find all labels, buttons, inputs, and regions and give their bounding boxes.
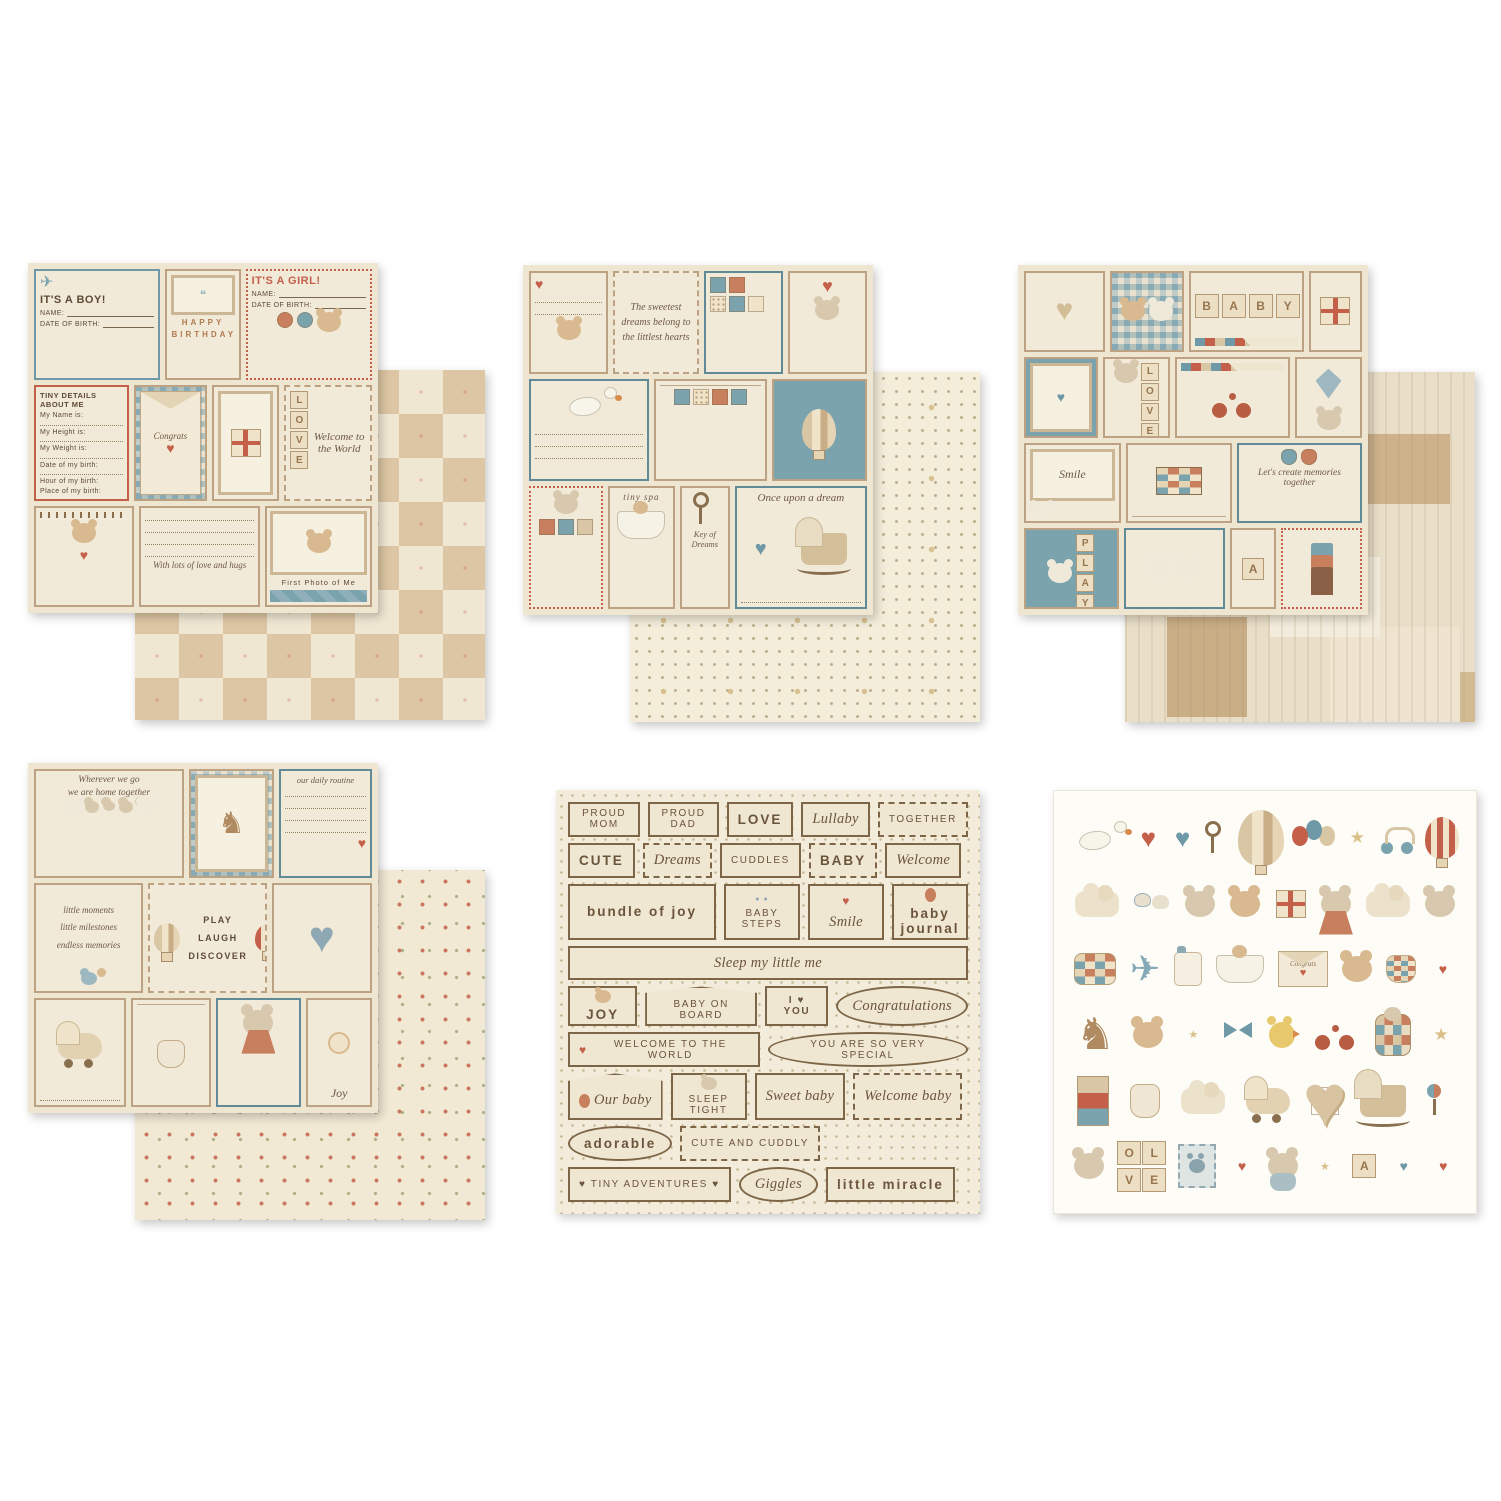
details-line: Place of my birth: (40, 488, 101, 495)
teddy-with-nightcap-icon (1133, 1022, 1163, 1048)
mouse-heart-card: ♥ (788, 271, 867, 374)
dotted-line (40, 422, 123, 426)
heart-icon: ♥ (40, 548, 128, 562)
label-text: WELCOME TO THE WORLD (592, 1039, 749, 1061)
mouse-icon (103, 801, 115, 811)
star-icon (1312, 1153, 1338, 1179)
bunting-banner (1195, 338, 1298, 346)
tricycle-card (1175, 357, 1290, 438)
motif-row (1068, 1068, 1462, 1134)
letter-block: L (290, 391, 308, 409)
motif-rows: Congrats♥OLVEA (1068, 805, 1462, 1199)
bathtub-teddy-icon (617, 511, 665, 539)
first-photo-caption: First Photo of Me (270, 578, 367, 587)
daily-routine-card: our daily routine ♥ (279, 769, 372, 878)
red-heart-icon (1430, 1153, 1456, 1179)
teddy-with-balloons-icon (1230, 891, 1260, 917)
label-joy: JOY (568, 986, 637, 1026)
airplane-with-teddy-icon (1130, 951, 1160, 987)
teddy-icon (1121, 301, 1145, 321)
a-block-card: A (1230, 528, 1276, 609)
reading-mouse-icon (554, 494, 578, 514)
label-row: PROUD MOMPROUD DADLOVELullabyTOGETHER (568, 802, 968, 837)
letter-block: L (1141, 363, 1159, 381)
letter-block: O (290, 411, 308, 429)
swing-card (1126, 443, 1232, 524)
key-of-dreams-text: Key of Dreams (686, 529, 724, 549)
clothes-patch (710, 296, 726, 312)
once-upon-text: Once upon a dream (741, 492, 861, 504)
label-row: JOYBABY ON BOARDI ♥ YOUCongratulations (568, 986, 968, 1026)
baby-clothes-card (704, 271, 783, 374)
moments-line: little moments (57, 902, 121, 919)
memories-card: Let's create memories together (1237, 443, 1362, 524)
label-row: Our babySLEEP TIGHTSweet babyWelcome bab… (568, 1073, 968, 1120)
heart-frame-icon: ♥ (794, 277, 861, 295)
label-text: Welcome (896, 852, 950, 869)
mouse-icon (63, 801, 81, 816)
key-of-dreams-card: Key of Dreams (680, 486, 730, 609)
blue-balloon-icon (154, 923, 180, 953)
label-row: CUTEDreamsCUDDLESBABYWelcome (568, 843, 968, 878)
key-icon (1204, 821, 1230, 855)
girl-name-label: NAME: (252, 291, 276, 298)
letter-block-a: A (1352, 1154, 1376, 1178)
label-lullaby: Lullaby (801, 802, 869, 837)
label-row: ♥ TINY ADVENTURES ♥Giggleslittle miracle (568, 1167, 968, 1202)
label-text: CUTE (579, 853, 624, 868)
girl-dob-label: DATE OF BIRTH: (252, 302, 312, 309)
label-row: Sleep my little me (568, 946, 968, 981)
cloud-icon (1366, 891, 1410, 917)
details-line: My Weight is: (40, 445, 87, 452)
tricycle-icon (1313, 1020, 1357, 1050)
cloud-icon (1181, 1088, 1225, 1114)
striped-hot-air-balloon-icon (1425, 817, 1459, 859)
smile-text: Smile (1059, 467, 1086, 482)
stork-icon (561, 385, 617, 423)
joy-card: Joy (306, 998, 372, 1107)
letter-block: B (1195, 294, 1219, 318)
name-write-line (67, 309, 154, 317)
patchwork-heart-icon: ♥ (1055, 296, 1073, 326)
dotted-line (535, 450, 643, 459)
patch-heart-card: ♥ (1024, 271, 1105, 352)
happy-birthday-card: ❝ HAPPY BIRTHDAY (165, 269, 240, 380)
heart-icon: ♥ (285, 836, 366, 850)
patch-teddy-icon (1048, 563, 1072, 583)
label-text: BABY STEPS (735, 908, 789, 930)
label-text: Sweet baby (766, 1088, 835, 1105)
label-baby-journal: baby journal (892, 884, 968, 940)
motif-row: OLVEA (1068, 1133, 1462, 1199)
letter-block: A (1076, 574, 1094, 592)
dotted-line (285, 800, 366, 809)
tiny-spa-card: tiny spa (608, 486, 675, 609)
clothesline (660, 385, 760, 386)
booties-icon (755, 893, 768, 904)
plaid-heart-icon: ♥ (1057, 390, 1065, 404)
cradle-icon (1360, 1085, 1406, 1117)
toys-card (1110, 271, 1184, 352)
label-i-you: I ♥ YOU (765, 986, 828, 1026)
label-text: CUDDLES (731, 855, 790, 866)
teddy-bear-icon (1342, 956, 1372, 982)
toy-scooter-icon (1379, 822, 1417, 854)
label-together: TOGETHER (878, 802, 968, 837)
mouse-love-blocks-card: L O V E (1103, 357, 1170, 438)
label-dreams: Dreams (643, 843, 712, 878)
gift-card (1309, 271, 1362, 352)
mouse-in-bathrobe-icon (1268, 1153, 1298, 1179)
high-chair-icon (1311, 543, 1333, 595)
stork-card (529, 379, 649, 482)
high-chair-card (1281, 528, 1362, 609)
label-text: YOU ARE SO VERY SPECIAL (784, 1039, 952, 1061)
label-text: Lullaby (812, 811, 858, 828)
star-icon (1428, 1022, 1454, 1048)
heart-icon: ♥ (1279, 968, 1327, 979)
paper-group-3: ♥ B A B Y (1018, 265, 1478, 725)
label-love: LOVE (727, 802, 794, 837)
letter-block: L (1076, 554, 1094, 572)
its-a-boy-card: ✈ IT'S A BOY! NAME: DATE OF BIRTH: (34, 269, 160, 380)
label-text: baby journal (901, 906, 960, 936)
label-text: Smile (829, 914, 863, 931)
love-welcome-card: L O V E Welcome to the World (284, 385, 372, 501)
tiny-details-card: TINY DETAILS ABOUT ME My Name is: My Hei… (34, 385, 129, 501)
congrats-envelope-icon: Congrats♥ (1278, 951, 1328, 987)
mouse-icon (1148, 559, 1172, 579)
label-text: little miracle (837, 1177, 944, 1192)
mouse-icon (1114, 363, 1138, 383)
balloon-bunch-icon (1292, 820, 1336, 856)
balloons-and-bear (252, 312, 366, 332)
flower-icon (328, 1032, 350, 1054)
mouse-icon (1176, 559, 1200, 579)
dotted-line (285, 824, 366, 833)
patchwork-onesie-icon (157, 1040, 185, 1068)
letter-block: P (1076, 534, 1094, 552)
book-icon (539, 519, 555, 535)
letter-blocks-love: OLVE (1117, 1141, 1164, 1192)
label-welcome-baby: Welcome baby (853, 1073, 962, 1120)
girl-card-title: IT'S A GIRL! (252, 275, 366, 287)
name-write-line (279, 290, 366, 298)
footprint-icon: ❝ (200, 289, 206, 301)
teddy-stamp-icon (1178, 1144, 1216, 1188)
photo-frame (270, 511, 367, 575)
dotted-line (535, 438, 643, 447)
dotted-line (535, 306, 602, 315)
mother-mouse-with-baby-icon (243, 1010, 273, 1036)
teddy-icon (317, 312, 341, 332)
teddy-icon (595, 990, 611, 1003)
motif-row (1068, 1002, 1462, 1068)
swing-rope (1132, 516, 1226, 517)
rocking-horse-card: ♞ (189, 769, 274, 878)
sweetest-dreams-note: The sweetest dreams belong to the little… (613, 271, 699, 374)
pram-card (34, 998, 126, 1107)
love-blocks: L O V E (1141, 363, 1159, 438)
label-text: BABY ON BOARD (656, 999, 746, 1021)
letter-block: O (1117, 1141, 1141, 1165)
plaid-heart-icon: ♥ (755, 539, 767, 559)
mice-frame-card (1124, 528, 1225, 609)
bird-icon (81, 972, 97, 985)
label-text: LOVE (738, 812, 783, 827)
label-proud-mom: PROUD MOM (568, 802, 640, 837)
play-blocks: P L A Y (1076, 534, 1094, 609)
label-bundle-of-joy: bundle of joy (568, 884, 716, 940)
welcome-script: Welcome to the World (312, 431, 366, 455)
label-text: SLEEP TIGHT (682, 1094, 736, 1116)
book-icon (558, 519, 574, 535)
label-text: ♥ TINY ADVENTURES ♥ (579, 1179, 720, 1190)
label-text: JOY (586, 1007, 619, 1022)
label-text: adorable (584, 1136, 656, 1151)
label-adorable: adorable (568, 1126, 672, 1161)
label-row: adorableCUTE AND CUDDLY (568, 1126, 968, 1161)
little-moments-card: little moments little milestones endless… (34, 883, 143, 992)
once-upon-a-dream-card: Once upon a dream ♥ (735, 486, 867, 609)
moments-line: little milestones (57, 919, 121, 936)
balloon-icon (277, 312, 293, 328)
book-icon (577, 519, 593, 535)
mouse-icon (119, 801, 133, 813)
banner-happy: HAPPY (171, 318, 234, 327)
heart-icon (579, 1043, 588, 1057)
letter-block: O (1141, 383, 1159, 401)
dotted-line (285, 788, 366, 797)
banner-birthday: BIRTHDAY (171, 330, 234, 339)
baby-letter-blocks: B A B Y (1195, 294, 1300, 318)
label-rows: PROUD MOMPROUD DADLOVELullabyTOGETHERCUT… (568, 802, 968, 1202)
letter-block: E (1141, 423, 1159, 438)
rocking-horse-icon: ♞ (218, 809, 245, 839)
label-text: PROUD MOM (579, 808, 629, 830)
balloon-icon (925, 888, 936, 902)
dotted-line (145, 548, 255, 557)
label-cuddles: CUDDLES (720, 843, 801, 878)
play-word: PLAY (188, 911, 247, 929)
dotted-line (40, 455, 123, 459)
clothesline (137, 1004, 204, 1005)
its-a-girl-card: IT'S A GIRL! NAME: DATE OF BIRTH: (246, 269, 372, 380)
label-baby: BABY (809, 843, 877, 878)
motif-row (1068, 871, 1462, 937)
mouse-icon (701, 1077, 717, 1090)
red-heart-icon (1135, 825, 1161, 851)
dotted-line (535, 426, 643, 435)
details-line: Hour of my birth: (40, 478, 99, 485)
routine-title: our daily routine (285, 775, 366, 785)
mouse-icon (137, 801, 155, 816)
label-text: Dreams (654, 852, 701, 869)
label-text: I ♥ YOU (776, 995, 817, 1017)
gift-box-icon (1276, 890, 1306, 918)
memories-text: Let's create memories together (1243, 468, 1356, 488)
moments-line: endless memories (57, 937, 121, 954)
label-text: Giggles (755, 1176, 802, 1193)
large-patchwork-heart-icon (1311, 1087, 1339, 1115)
plaid-heart-icon (1391, 1153, 1417, 1179)
note-card: ♥ (529, 271, 608, 374)
label-sleep-tight: SLEEP TIGHT (671, 1073, 747, 1120)
details-line: My Height is: (40, 429, 86, 436)
mouse-in-robe-icon (815, 300, 839, 320)
sheet4-front: Wherever we go we are home together ♞ (28, 763, 378, 1113)
home-script-line1: Wherever we go (40, 775, 178, 785)
dotted-line (285, 812, 366, 821)
rattle-icon (1426, 1084, 1452, 1118)
rocking-horse-icon (1076, 1013, 1115, 1057)
onesie-icon (674, 389, 690, 405)
discover-word: DISCOVER (188, 947, 247, 965)
envelope-word: Congrats (154, 431, 188, 441)
small-heart-icon (1430, 956, 1456, 982)
cloud-icon (1075, 891, 1119, 917)
mother-mouse-with-baby-icon (1321, 891, 1351, 917)
smile-frame: Smile (1030, 449, 1115, 502)
love-blocks: L O V E (290, 391, 308, 495)
dob-write-line (103, 320, 154, 328)
onesie-icon (712, 389, 728, 405)
label-text: Welcome baby (864, 1088, 951, 1105)
airplane-icon: ✈ (40, 275, 154, 291)
label-text: CUTE AND CUDDLY (691, 1138, 809, 1149)
product-collage: ✈ IT'S A BOY! NAME: DATE OF BIRTH: ❝ HAP… (0, 0, 1501, 1501)
pram-with-teddy-icon (1246, 1088, 1290, 1114)
letter-block-a: A (1351, 1153, 1377, 1179)
clothes-patch (748, 296, 764, 312)
dotted-line (741, 594, 861, 603)
gift-frame (218, 391, 273, 495)
toy-horse-icon (1149, 301, 1173, 321)
label-sweet-baby: Sweet baby (755, 1073, 846, 1120)
label-you-are-so-very-special: YOU ARE SO VERY SPECIAL (768, 1032, 968, 1067)
little-teddy-icon (1030, 504, 1046, 517)
heart-frame-card: ♥ (1024, 357, 1098, 438)
heart-icon (842, 893, 849, 910)
dotted-line (40, 439, 123, 443)
paper-group-1: ✈ IT'S A BOY! NAME: DATE OF BIRTH: ❝ HAP… (28, 263, 488, 723)
teddy-in-bathtub-icon (1216, 955, 1264, 983)
gift-icon (231, 429, 261, 457)
sleeping-teddy-icon (72, 523, 96, 543)
letter-block: A (1222, 294, 1246, 318)
letter-block: Y (1276, 294, 1300, 318)
dotted-line (40, 472, 123, 476)
baby-blocks-card: B A B Y (1189, 271, 1304, 352)
baby-bottle-icon (1174, 952, 1202, 986)
hot-air-balloon-icon (802, 409, 836, 451)
label-row: WELCOME TO THE WORLDYOU ARE SO VERY SPEC… (568, 1032, 968, 1067)
details-line: Date of my birth: (40, 462, 98, 469)
hot-air-balloon-card (772, 379, 867, 482)
laugh-word: LAUGH (188, 929, 247, 947)
label-giggles: Giggles (739, 1167, 818, 1202)
boy-dob-label: DATE OF BIRTH: (40, 321, 100, 328)
gift-icon (1320, 297, 1350, 325)
balloon-icon (297, 312, 313, 328)
clothes-patch (729, 277, 745, 293)
motif-row: Congrats♥ (1068, 936, 1462, 1002)
sheet3-front: ♥ B A B Y (1018, 265, 1368, 615)
heart-icon: ♥ (166, 441, 174, 455)
dotted-line (145, 512, 255, 521)
sheet5-word-labels: PROUD MOMPROUD DADLOVELullabyTOGETHERCUT… (556, 790, 980, 1214)
handprint-icon (1281, 449, 1297, 465)
label-little-miracle: little miracle (826, 1167, 955, 1202)
onesie-line-card (131, 998, 210, 1107)
letter-block: V (290, 431, 308, 449)
joy-text: Joy (312, 1086, 366, 1101)
mouse-icon (85, 801, 99, 813)
sheet2-front: ♥ The sweetest dreams belong to the litt… (523, 265, 873, 615)
sheet6-die-cut-elements: Congrats♥OLVEA (1053, 790, 1477, 1214)
label-congratulations: Congratulations (836, 986, 968, 1026)
tricycle-icon (1210, 388, 1254, 418)
dotted-line (40, 1092, 120, 1101)
cradle-icon (801, 533, 847, 565)
sleeping-teddy-card: ♥ (34, 506, 134, 607)
quilt-strip (270, 590, 367, 602)
spiral-binding (40, 512, 128, 518)
paper-group-4: Wherever we go we are home together ♞ (28, 763, 488, 1223)
paper-group-2: ♥ The sweetest dreams belong to the litt… (523, 265, 983, 725)
patchwork-hot-air-balloon-icon (1238, 810, 1284, 866)
dotted-line (535, 294, 602, 303)
details-line: My Name is: (40, 412, 83, 419)
mother-mouse-card (216, 998, 302, 1107)
key-icon (692, 492, 718, 526)
patchwork-heart-card: ♥ (272, 883, 372, 992)
onesie-icon (731, 389, 747, 405)
mouse-with-kite-icon (1317, 410, 1341, 430)
smile-frame-card: Smile (1024, 443, 1121, 524)
boy-name-label: NAME: (40, 310, 64, 317)
details-title: TINY DETAILS ABOUT ME (40, 391, 123, 409)
mouse-in-quilt-icon (1375, 1014, 1411, 1056)
mouse-with-blocks-icon (1074, 1153, 1104, 1179)
patchwork-pillow-icon (1074, 953, 1116, 985)
mouse-head-icon (1425, 891, 1455, 917)
envelope-icon: Congrats ♥ (140, 391, 202, 495)
label-sleep-my-little-me: Sleep my little me (568, 946, 968, 981)
heart-frame: ♥ (1030, 363, 1092, 432)
letter-block: B (1249, 294, 1273, 318)
play-laugh-discover-card: PLAY LAUGH DISCOVER (148, 883, 266, 992)
label-row: bundle of joyBABY STEPSSmilebaby journal (568, 884, 968, 940)
patchwork-swing-icon (1156, 467, 1202, 495)
handprint-icon (1301, 449, 1317, 465)
striped-balloon-icon (255, 924, 266, 952)
baby-onesie-icon (1130, 1084, 1160, 1118)
label-welcome: Welcome (885, 843, 961, 878)
blue-bow-icon (1224, 1022, 1252, 1048)
dotted-line (145, 536, 255, 545)
label-text: Sleep my little me (714, 955, 822, 972)
dreams-note-text: The sweetest dreams belong to the little… (619, 300, 693, 345)
play-blocks-card: P L A Y (1024, 528, 1119, 609)
clothes-patch (729, 296, 745, 312)
label-baby-on-board: BABY ON BOARD (645, 986, 757, 1026)
label-tiny-adventures: ♥ TINY ADVENTURES ♥ (568, 1167, 731, 1202)
kite-mouse-card (1295, 357, 1362, 438)
mice-family-card: Wherever we go we are home together (34, 769, 184, 878)
gift-frame-card (212, 385, 279, 501)
